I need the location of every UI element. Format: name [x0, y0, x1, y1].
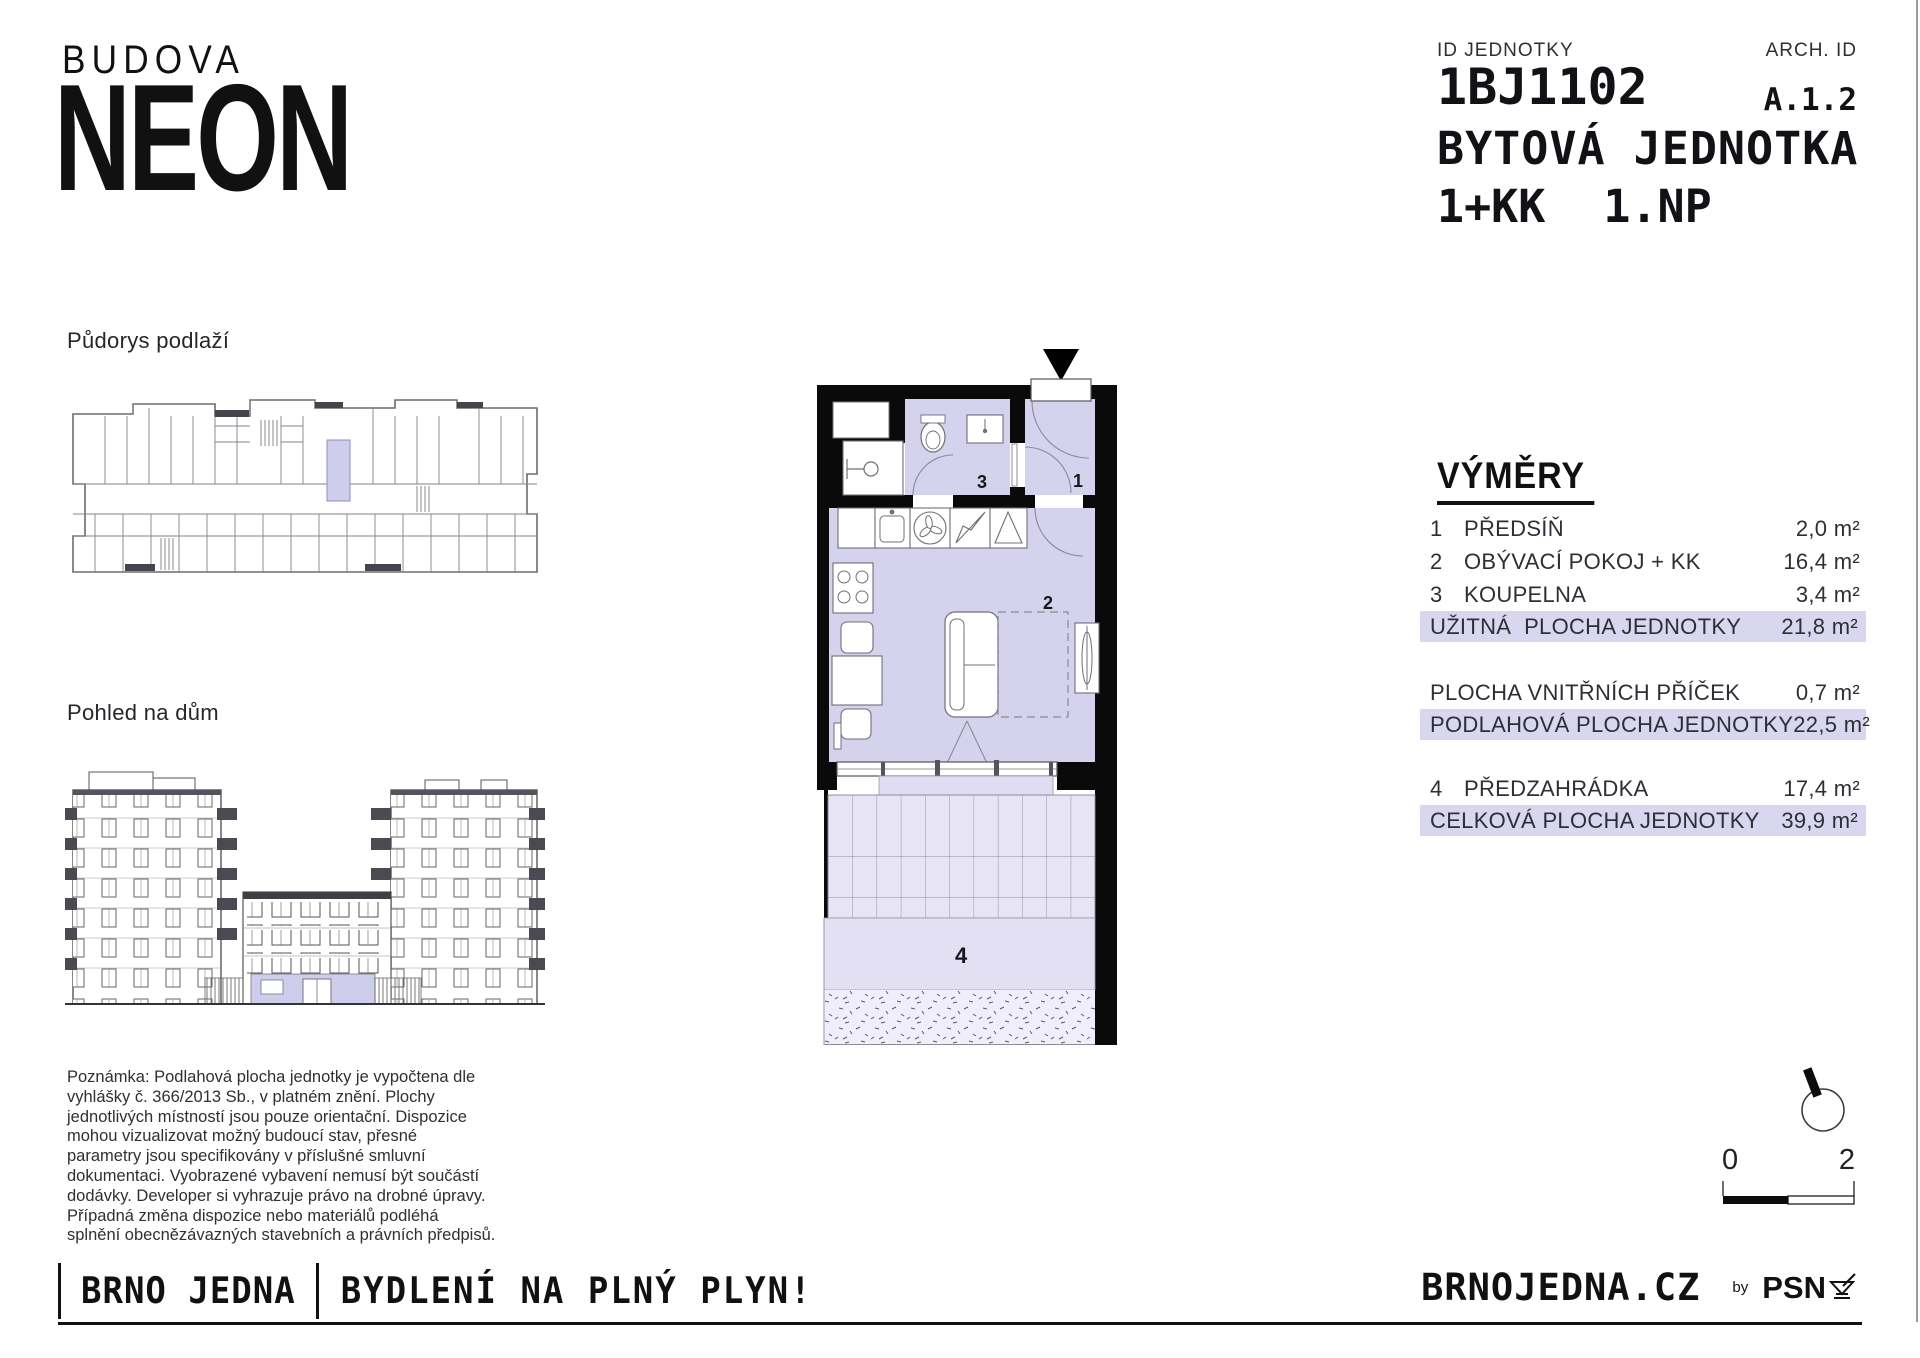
psn-logo-icon: [1827, 1273, 1857, 1303]
table-row: PLOCHA VNITŘNÍCH PŘÍČEK 0,7 m²: [1430, 677, 1860, 708]
row-number: 1: [1430, 516, 1464, 542]
row-number: 3: [1430, 582, 1464, 608]
layout-value: 1+KK: [1437, 180, 1545, 233]
table-row-total-area: CELKOVÁ PLOCHA JEDNOTKY 39,9 m²: [1420, 805, 1866, 836]
logo-neon: NEON: [54, 62, 350, 214]
unit-type-title: BYTOVÁ JEDNOTKA: [1437, 122, 1858, 175]
unit-id-value: 1BJ1102: [1437, 58, 1648, 116]
row-label: PLOCHA VNITŘNÍCH PŘÍČEK: [1430, 680, 1796, 706]
areas-table: VÝMĚRY 1 PŘEDSÍŇ 2,0 m² 2 OBÝVACÍ POKOJ …: [1430, 455, 1860, 855]
legal-note: Poznámka: Podlahová plocha jednotky je v…: [67, 1068, 503, 1246]
overview-highlighted-unit: [327, 440, 350, 501]
footer-by: by: [1732, 1279, 1748, 1296]
room-label-hall: 1: [1073, 471, 1083, 491]
elevation-label: Pohled na dům: [67, 700, 219, 726]
elevation-ground-floor: [205, 974, 421, 1004]
arch-id-label: ARCH. ID: [1766, 40, 1857, 62]
row-label: CELKOVÁ PLOCHA JEDNOTKY: [1430, 808, 1781, 834]
room-label-bathroom: 3: [977, 472, 987, 492]
footer-right: BRNOJEDNA.CZ by PSN: [1421, 1266, 1857, 1309]
floorplan-overview-label: Půdorys podlaží: [67, 328, 229, 354]
elevation-drawing: [65, 752, 545, 1014]
room-label-living: 2: [1043, 593, 1053, 613]
row-label: PODLAHOVÁ PLOCHA JEDNOTKY: [1430, 712, 1793, 738]
floor-value: 1.NP: [1603, 180, 1711, 233]
terrace-garden: [824, 776, 1095, 1045]
row-label: PŘEDZAHRÁDKA: [1464, 776, 1783, 802]
kitchen-row: [838, 508, 1027, 548]
psn-logo-text: PSN: [1762, 1270, 1826, 1306]
row-value: 3,4 m²: [1796, 582, 1860, 608]
scale-bar: 0 2: [1722, 1146, 1855, 1207]
row-label: PŘEDSÍŇ: [1464, 516, 1796, 542]
room-label-garden: 4: [955, 943, 968, 968]
row-label: OBÝVACÍ POKOJ + KK: [1464, 549, 1783, 575]
footer-left: BRNO JEDNA BYDLENÍ NA PLNÝ PLYN!: [58, 1262, 813, 1320]
row-value: 16,4 m²: [1783, 549, 1860, 575]
footer-rule: [58, 1322, 1862, 1325]
row-label: UŽITNÁ PLOCHA JEDNOTKY: [1430, 614, 1781, 640]
row-value: 39,9 m²: [1781, 808, 1858, 834]
unit-floorplan: 3 1 2 4: [817, 343, 1117, 1045]
scale-bar-graphic: [1722, 1181, 1855, 1207]
row-value: 17,4 m²: [1783, 776, 1860, 802]
row-label: KOUPELNA: [1464, 582, 1796, 608]
row-value: 0,7 m²: [1796, 680, 1860, 706]
terrace-window-band: [837, 760, 1057, 778]
table-row: 3 KOUPELNA 3,4 m²: [1430, 579, 1860, 610]
scale-numbers: 0 2: [1722, 1146, 1855, 1175]
row-value: 21,8 m²: [1781, 614, 1858, 640]
areas-table-title: VÝMĚRY: [1437, 455, 1594, 505]
footer-slogan: BYDLENÍ NA PLNÝ PLYN!: [319, 1269, 813, 1312]
row-value: 2,0 m²: [1796, 516, 1860, 542]
page-right-border: [1916, 0, 1918, 1322]
row-value: 22,5 m²: [1793, 712, 1870, 738]
table-row-usable-area: UŽITNÁ PLOCHA JEDNOTKY 21,8 m²: [1420, 611, 1866, 642]
layout-floor-row: 1+KK 1.NP: [1437, 180, 1712, 233]
arch-id-value: A.1.2: [1764, 82, 1857, 118]
row-number: 2: [1430, 549, 1464, 575]
table-row: 1 PŘEDSÍŇ 2,0 m²: [1430, 513, 1860, 544]
scale-end: 2: [1839, 1146, 1855, 1175]
floorplan-overview-drawing: [65, 386, 545, 586]
table-row: 2 OBÝVACÍ POKOJ + KK 16,4 m²: [1430, 546, 1860, 577]
table-row-floor-area: PODLAHOVÁ PLOCHA JEDNOTKY 22,5 m²: [1420, 709, 1866, 740]
compass-icon: [1790, 1062, 1856, 1132]
elevation-right-tower: [371, 780, 545, 1004]
footer-brand: BRNO JEDNA: [61, 1269, 316, 1312]
scale-start: 0: [1722, 1146, 1738, 1175]
psn-logo: PSN: [1762, 1270, 1857, 1306]
row-number: 4: [1430, 776, 1464, 802]
footer-website: BRNOJEDNA.CZ: [1421, 1266, 1700, 1309]
entrance-arrow-icon: [1043, 349, 1079, 381]
elevation-left-tower: [65, 772, 237, 1004]
table-row: 4 PŘEDZAHRÁDKA 17,4 m²: [1430, 773, 1860, 804]
